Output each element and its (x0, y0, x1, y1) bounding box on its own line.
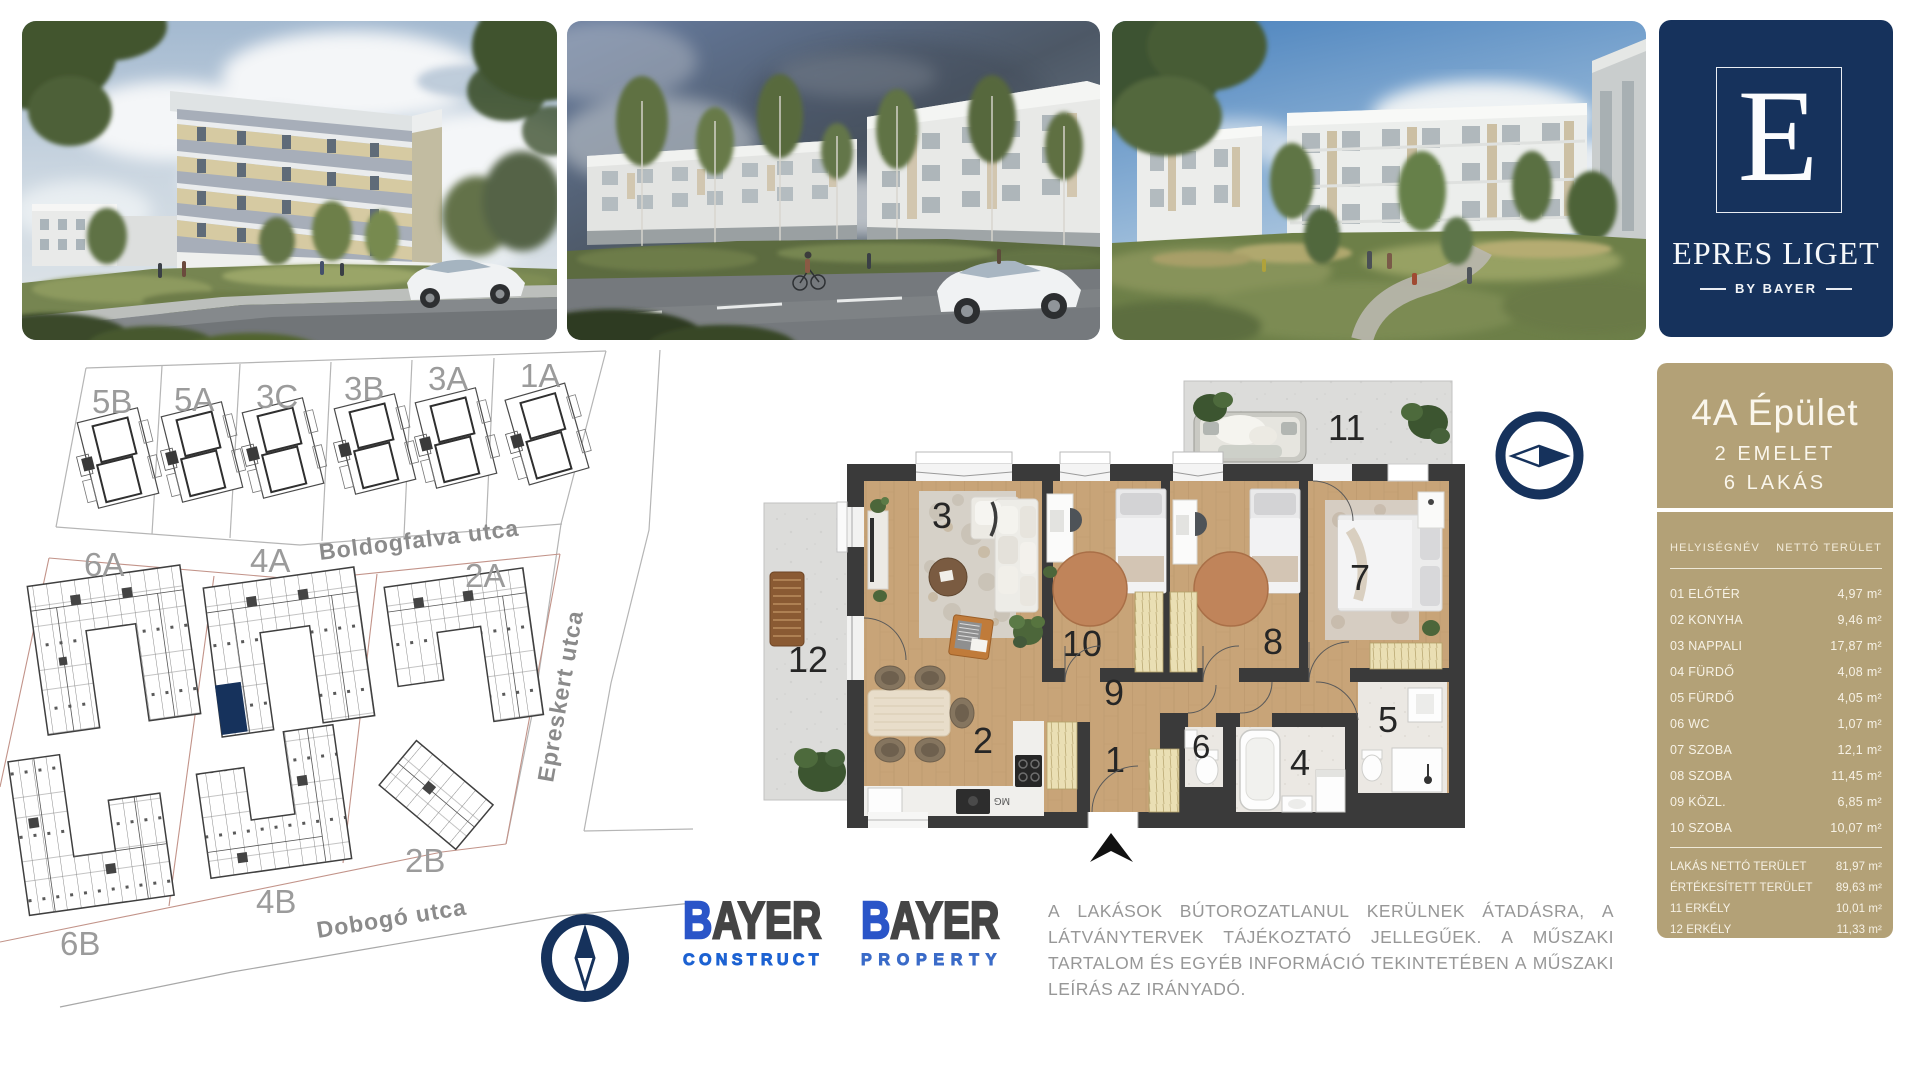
svg-text:4: 4 (1290, 742, 1310, 783)
svg-text:4B: 4B (256, 883, 296, 920)
svg-text:1: 1 (1105, 739, 1125, 780)
svg-text:6B: 6B (60, 925, 100, 962)
svg-text:6A: 6A (84, 546, 124, 583)
svg-text:10: 10 (1062, 623, 1102, 664)
svg-text:11: 11 (1328, 407, 1365, 448)
svg-text:3C: 3C (256, 378, 298, 415)
svg-text:2A: 2A (465, 557, 505, 594)
svg-text:4A: 4A (250, 542, 290, 579)
svg-text:3B: 3B (344, 370, 384, 407)
svg-text:2: 2 (973, 720, 993, 761)
svg-text:2B: 2B (405, 842, 445, 879)
svg-text:7: 7 (1350, 557, 1370, 598)
svg-text:8: 8 (1263, 621, 1283, 662)
svg-text:3A: 3A (428, 360, 468, 397)
svg-text:5B: 5B (92, 383, 132, 420)
svg-text:12: 12 (788, 639, 828, 680)
svg-text:9: 9 (1104, 672, 1124, 713)
svg-text:5A: 5A (174, 381, 214, 418)
svg-text:MG: MG (994, 795, 1010, 806)
svg-text:6: 6 (1192, 728, 1210, 765)
svg-text:5: 5 (1378, 699, 1398, 740)
svg-text:3: 3 (932, 495, 952, 536)
svg-text:1A: 1A (520, 357, 560, 394)
